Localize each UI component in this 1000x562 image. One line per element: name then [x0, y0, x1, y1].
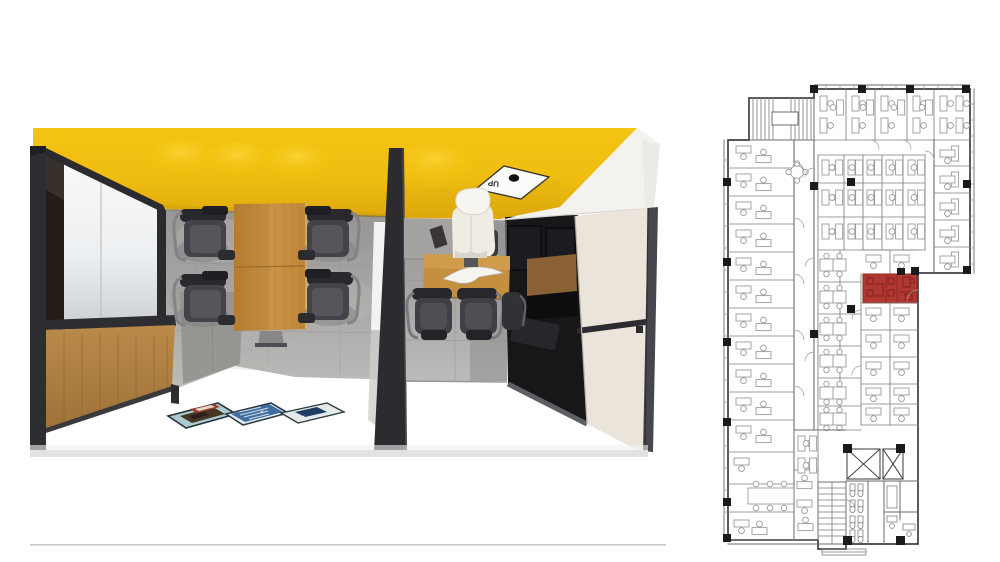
svg-text:UP: UP	[487, 178, 500, 188]
